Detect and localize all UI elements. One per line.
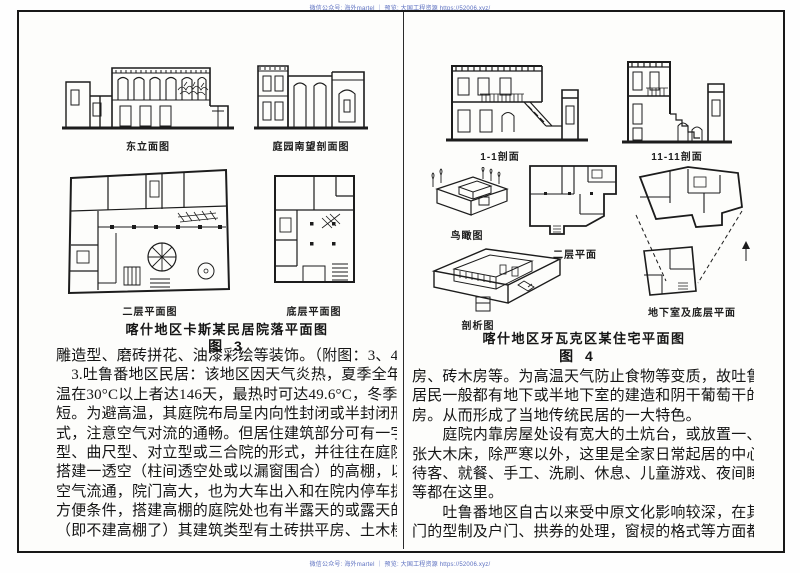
figure-section-11-11 bbox=[620, 54, 734, 146]
right-figure-title: 喀什地区牙瓦克区某住宅平面图 bbox=[482, 328, 685, 347]
right-figure-number: 图 4 bbox=[559, 346, 597, 366]
left-ground-floor-plan-drawing bbox=[270, 170, 360, 294]
caption-courtyard-section: 庭园南望剖面图 bbox=[273, 138, 350, 153]
text-line: 空气流通，院门高大，也为大车出入和在院内停车提供 bbox=[56, 483, 397, 502]
left-second-floor-plan-drawing bbox=[66, 167, 232, 297]
right-body-text: 房、砖木房等。为高温天气防止食物等变质，故吐鲁番 居民一般都有地下或半地下室的建… bbox=[412, 368, 754, 543]
cutaway-axon-drawing bbox=[428, 241, 568, 315]
figure-east-elevation bbox=[60, 56, 236, 134]
figure-left-ground-floor-plan bbox=[270, 170, 360, 294]
right-second-floor-plan-drawing bbox=[524, 160, 624, 242]
scanned-book-spread: 微信公众号: 海外martel ｜ 预览: 大国工程资源 https://520… bbox=[0, 0, 800, 573]
figure-right-second-floor-plan bbox=[524, 160, 624, 242]
text-line: 待客、就餐、手工、洗刷、休息、儿童游戏、夜间睡眠 bbox=[412, 465, 754, 484]
text-line: 式，注意空气对流的通畅。但居住建筑部分可有一字 bbox=[56, 425, 397, 444]
page-divider-line bbox=[403, 12, 404, 549]
figure-left-second-floor-plan bbox=[66, 167, 232, 297]
figure-courtyard-section bbox=[252, 58, 370, 134]
text-line: 型、曲尺型、对立型或三合院的形式，并往往在庭院上 bbox=[56, 444, 397, 463]
bird-view-drawing bbox=[425, 167, 515, 225]
left-body-text: 雕造型、磨砖拼花、油漆彩绘等装饰。（附图：3、4） 3.吐鲁番地区民居：该地区因… bbox=[56, 347, 397, 541]
basement-ground-plan-drawing bbox=[626, 163, 758, 303]
text-line: （即不建高棚了）其建筑类型有土砖拱平房、土木楼 bbox=[56, 522, 397, 541]
text-line: 搭建一透空（柱间透空处或以漏窗围合）的高棚，以利 bbox=[56, 463, 397, 482]
caption-section-1-1: 1-1剖面 bbox=[480, 148, 519, 163]
watermark-bottom: 微信公众号: 海外martel ｜ 预览: 大国工程资源 https://520… bbox=[310, 559, 491, 568]
figure-basement-ground-plan bbox=[626, 163, 758, 303]
caption-basement-ground-plan: 地下室及底层平面 bbox=[648, 304, 736, 319]
section-1-1-drawing bbox=[444, 54, 590, 146]
text-line: 3.吐鲁番地区民居：该地区因天气炎热，夏季全年气 bbox=[56, 366, 397, 385]
text-line: 门的型制及户门、拱券的处理，窗棂的格式等方面都有 bbox=[412, 523, 754, 542]
text-line: 等都在这里。 bbox=[412, 484, 754, 503]
figure-bird-view bbox=[425, 167, 515, 225]
text-line: 房。从而形成了当地传统民居的一大特色。 bbox=[412, 407, 754, 426]
text-line: 吐鲁番地区自古以来受中原文化影响较深，在其大 bbox=[412, 504, 754, 523]
text-line: 张大木床，除严寒以外，这里是全家日常起居的中心， bbox=[412, 446, 754, 465]
text-line: 雕造型、磨砖拼花、油漆彩绘等装饰。（附图：3、4） bbox=[56, 347, 397, 366]
east-elevation-drawing bbox=[60, 56, 236, 134]
figure-section-1-1 bbox=[444, 54, 590, 146]
caption-section-11-11: 11-11剖面 bbox=[651, 148, 702, 163]
text-line: 方便条件，搭建高棚的庭院处也有半露天的或露天的 bbox=[56, 502, 397, 521]
text-line: 短。为避高温，其庭院布局呈内向性封闭或半封闭形 bbox=[56, 405, 397, 424]
text-line: 温在30°C以上者达146天，最热时可达49.6°C，冬季较 bbox=[56, 386, 397, 405]
section-11-11-drawing bbox=[620, 54, 734, 146]
figure-cutaway-axon bbox=[428, 241, 568, 315]
caption-left-second-floor-plan: 二层平面图 bbox=[123, 303, 178, 318]
text-line: 庭院内靠房屋处设有宽大的土炕台，或放置一、两 bbox=[412, 426, 754, 445]
courtyard-section-drawing bbox=[252, 58, 370, 134]
text-line: 房、砖木房等。为高温天气防止食物等变质，故吐鲁番 bbox=[412, 368, 754, 387]
caption-left-ground-floor-plan: 底层平面图 bbox=[287, 303, 342, 318]
caption-east-elevation: 东立面图 bbox=[126, 138, 170, 153]
caption-bird-view: 鸟瞰图 bbox=[451, 227, 484, 242]
text-line: 居民一般都有地下或半地下室的建造和阴干葡萄干的凉 bbox=[412, 387, 754, 406]
